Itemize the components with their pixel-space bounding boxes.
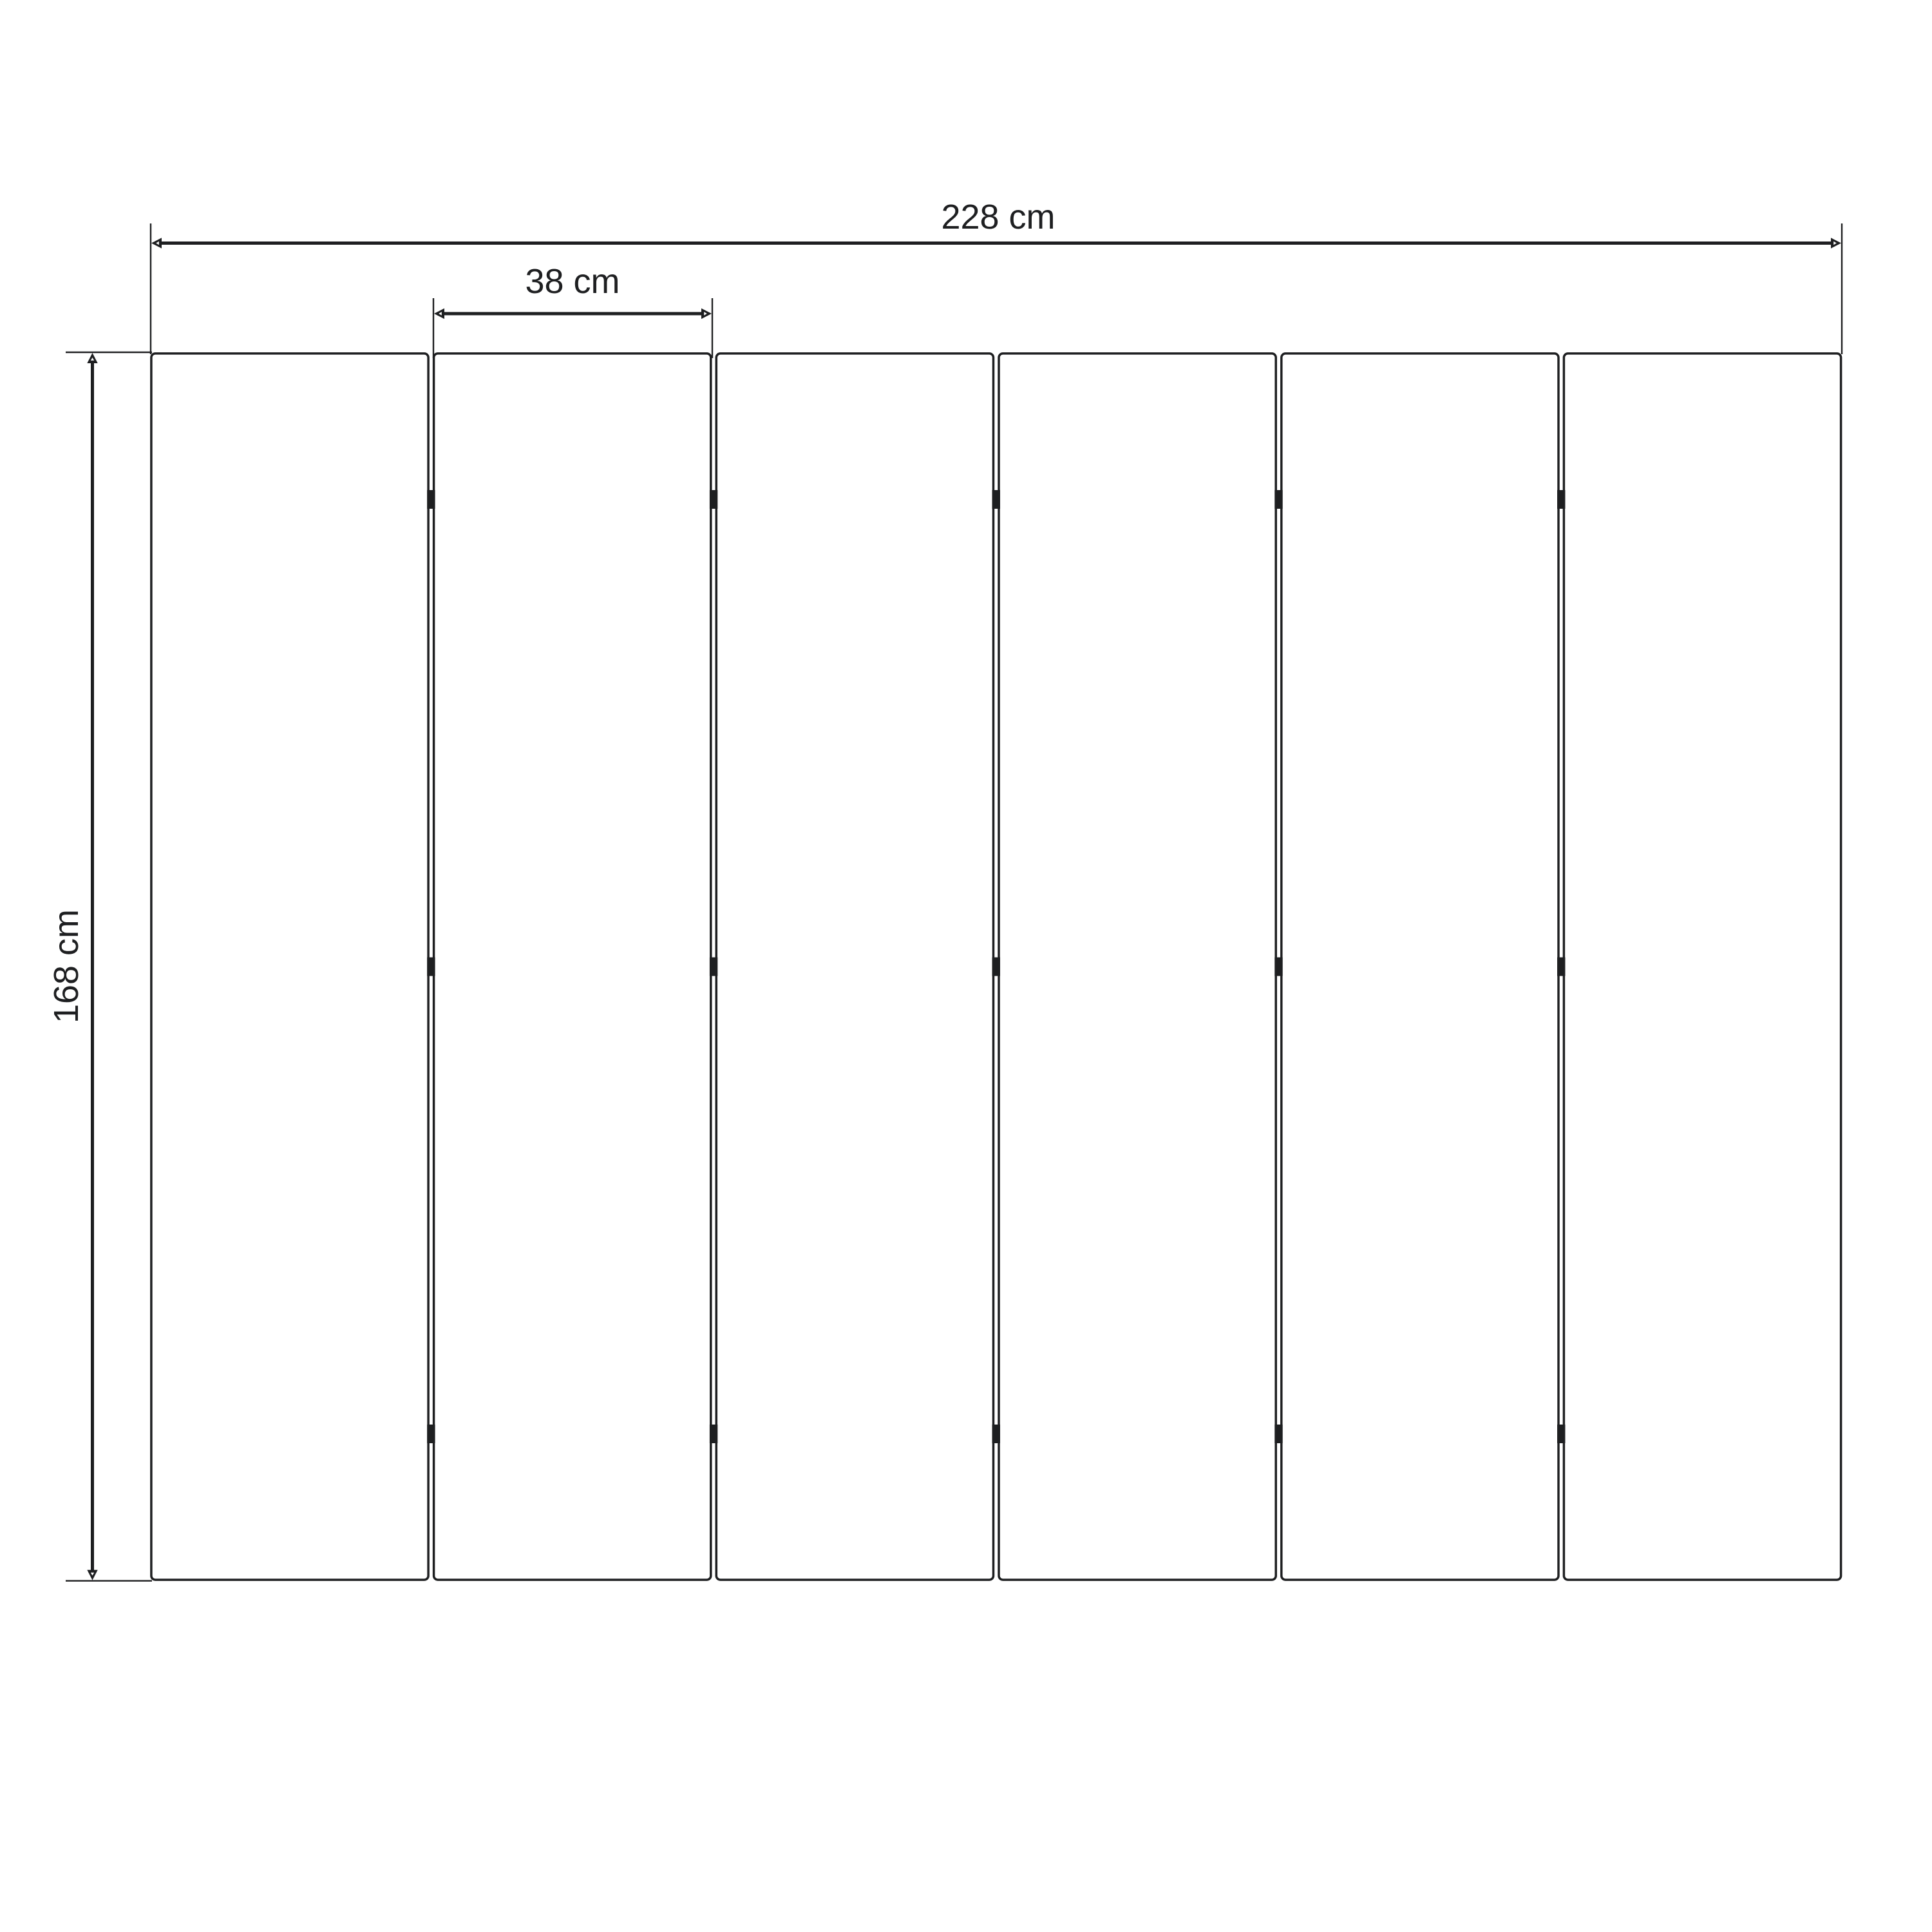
svg-text:168 cm: 168 cm [47,909,86,1023]
svg-text:228 cm: 228 cm [941,198,1055,236]
svg-text:38 cm: 38 cm [525,262,620,301]
